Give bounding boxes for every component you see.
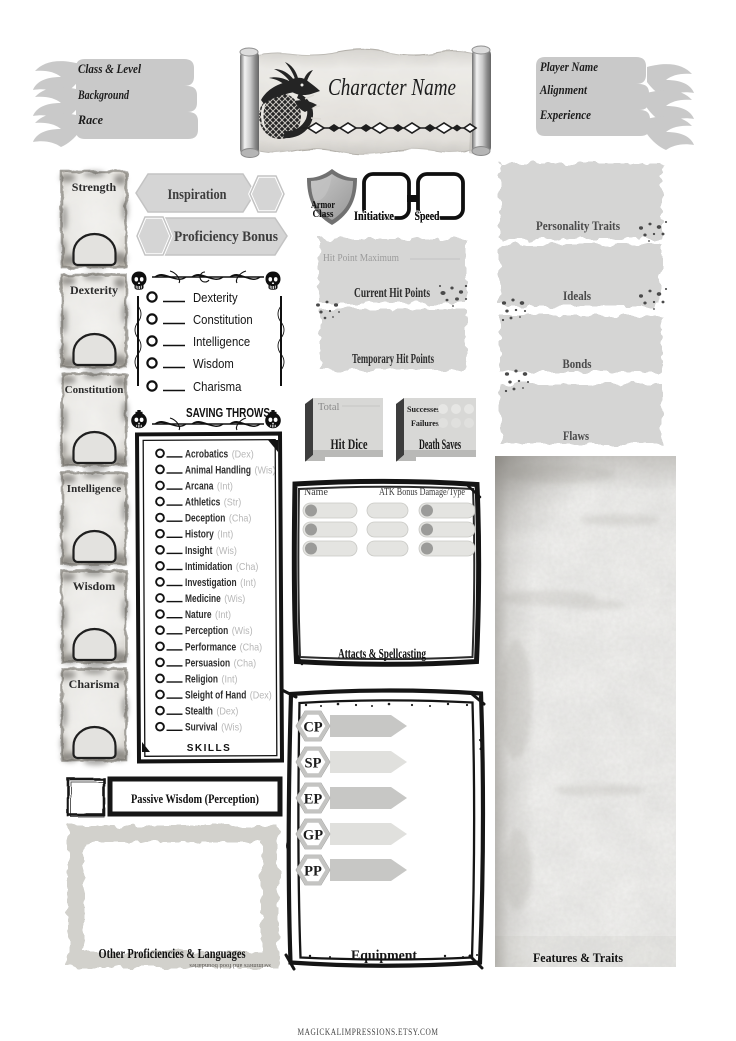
- svg-text:(Str): (Str): [224, 498, 242, 509]
- svg-text:Investigation: Investigation: [185, 577, 237, 589]
- svg-text:(Wis): (Wis): [224, 594, 245, 605]
- svg-text:Charisma: Charisma: [69, 677, 120, 691]
- svg-text:(Dex): (Dex): [250, 691, 272, 702]
- svg-text:EP: EP: [304, 792, 323, 808]
- svg-text:(Cha): (Cha): [234, 658, 257, 669]
- svg-text:Initiative: Initiative: [354, 208, 394, 223]
- svg-text:Survival: Survival: [185, 722, 218, 734]
- svg-text:(Int): (Int): [222, 674, 238, 685]
- svg-text:Personality Traits: Personality Traits: [536, 218, 620, 233]
- svg-text:Intelligence: Intelligence: [193, 334, 250, 349]
- svg-text:Athletics: Athletics: [185, 497, 220, 509]
- svg-text:Constitution: Constitution: [65, 384, 124, 396]
- svg-text:(Cha): (Cha): [236, 562, 259, 573]
- svg-text:History: History: [185, 529, 214, 541]
- svg-text:Death Saves: Death Saves: [419, 437, 461, 453]
- svg-text:(Int): (Int): [215, 610, 231, 621]
- svg-text:Sleight of Hand: Sleight of Hand: [185, 690, 246, 702]
- svg-text:MAGICKALIMPRESSIONS.ETSY.COM: MAGICKALIMPRESSIONS.ETSY.COM: [298, 1028, 439, 1038]
- svg-text:(Wis): (Wis): [216, 546, 237, 557]
- svg-text:CP: CP: [303, 720, 322, 736]
- svg-text:Total: Total: [318, 402, 340, 413]
- svg-text:Strength: Strength: [72, 180, 117, 194]
- svg-text:Features & Traits: Features & Traits: [533, 951, 623, 965]
- svg-text:Alignment: Alignment: [539, 83, 587, 97]
- svg-text:Successes: Successes: [407, 404, 441, 414]
- svg-text:(Int): (Int): [240, 578, 256, 589]
- svg-text:Class & Level: Class & Level: [78, 62, 141, 76]
- svg-text:Ideals: Ideals: [563, 288, 591, 303]
- svg-text:Wisdom: Wisdom: [193, 356, 234, 371]
- svg-text:ATK Bonus Damage/Type: ATK Bonus Damage/Type: [379, 487, 465, 498]
- svg-text:Passive Wisdom (Perception): Passive Wisdom (Perception): [131, 791, 259, 806]
- svg-text:SAVING THROWS: SAVING THROWS: [186, 405, 270, 420]
- svg-text:Hit Point Maximum: Hit Point Maximum: [323, 253, 399, 264]
- svg-text:Background: Background: [77, 88, 129, 102]
- svg-text:SP: SP: [305, 756, 322, 772]
- svg-text:(Wis): (Wis): [232, 626, 253, 637]
- svg-text:(Wis): (Wis): [221, 723, 242, 734]
- svg-text:Failures: Failures: [411, 418, 440, 428]
- svg-text:Experience: Experience: [539, 108, 591, 122]
- svg-text:(Cha): (Cha): [240, 642, 263, 653]
- svg-text:Persuasion: Persuasion: [185, 657, 230, 669]
- svg-text:Proficiency Bonus: Proficiency Bonus: [174, 229, 278, 245]
- svg-text:Constitution: Constitution: [193, 312, 253, 327]
- svg-text:Bonds: Bonds: [563, 356, 592, 371]
- svg-text:Charisma: Charisma: [193, 379, 242, 394]
- svg-text:PP: PP: [304, 864, 322, 880]
- svg-text:Performance: Performance: [185, 641, 236, 653]
- svg-text:Temporary Hit Points: Temporary Hit Points: [352, 351, 434, 366]
- svg-text:swimmers and food boundaries: swimmers and food boundaries: [189, 962, 271, 969]
- svg-text:Animal Handling: Animal Handling: [185, 464, 251, 476]
- svg-text:GP: GP: [303, 828, 323, 844]
- svg-text:Equipment: Equipment: [351, 948, 417, 964]
- svg-text:SKILLS: SKILLS: [187, 743, 232, 754]
- svg-text:(Dex): (Dex): [232, 449, 254, 460]
- svg-text:Player Name: Player Name: [540, 60, 598, 74]
- svg-text:Medicine: Medicine: [185, 593, 221, 605]
- svg-text:Dexterity: Dexterity: [70, 283, 118, 297]
- svg-text:Speed: Speed: [415, 208, 441, 223]
- svg-text:Class: Class: [313, 209, 334, 220]
- svg-text:(Cha): (Cha): [229, 514, 252, 525]
- svg-text:Character Name: Character Name: [328, 74, 456, 101]
- svg-text:Current Hit Points: Current Hit Points: [354, 285, 430, 300]
- svg-text:Intelligence: Intelligence: [67, 483, 121, 495]
- svg-text:Nature: Nature: [185, 609, 212, 621]
- svg-text:Hit Dice: Hit Dice: [331, 437, 368, 453]
- svg-text:Stealth: Stealth: [185, 706, 213, 718]
- svg-text:(Dex): (Dex): [216, 707, 238, 718]
- svg-text:Flaws: Flaws: [563, 428, 589, 443]
- svg-text:Wisdom: Wisdom: [73, 579, 115, 593]
- svg-text:(Int): (Int): [217, 482, 233, 493]
- svg-text:Acrobatics: Acrobatics: [185, 448, 228, 460]
- svg-text:Attacts & Spellcasting: Attacts & Spellcasting: [338, 647, 426, 662]
- svg-text:Dexterity: Dexterity: [193, 290, 238, 305]
- svg-text:Name: Name: [304, 487, 328, 498]
- svg-text:Perception: Perception: [185, 625, 228, 637]
- svg-text:Arcana: Arcana: [185, 481, 213, 493]
- svg-text:Intimidation: Intimidation: [185, 561, 232, 573]
- svg-text:(Int): (Int): [217, 530, 233, 541]
- svg-text:Insight: Insight: [185, 545, 213, 557]
- svg-text:Race: Race: [77, 113, 103, 127]
- svg-text:Other Proficiencies & Language: Other Proficiencies & Languages: [99, 946, 246, 961]
- svg-text:(Wis): (Wis): [255, 465, 276, 476]
- svg-text:Inspiration: Inspiration: [168, 187, 227, 203]
- svg-text:Deception: Deception: [185, 513, 225, 525]
- svg-text:Religion: Religion: [185, 673, 218, 685]
